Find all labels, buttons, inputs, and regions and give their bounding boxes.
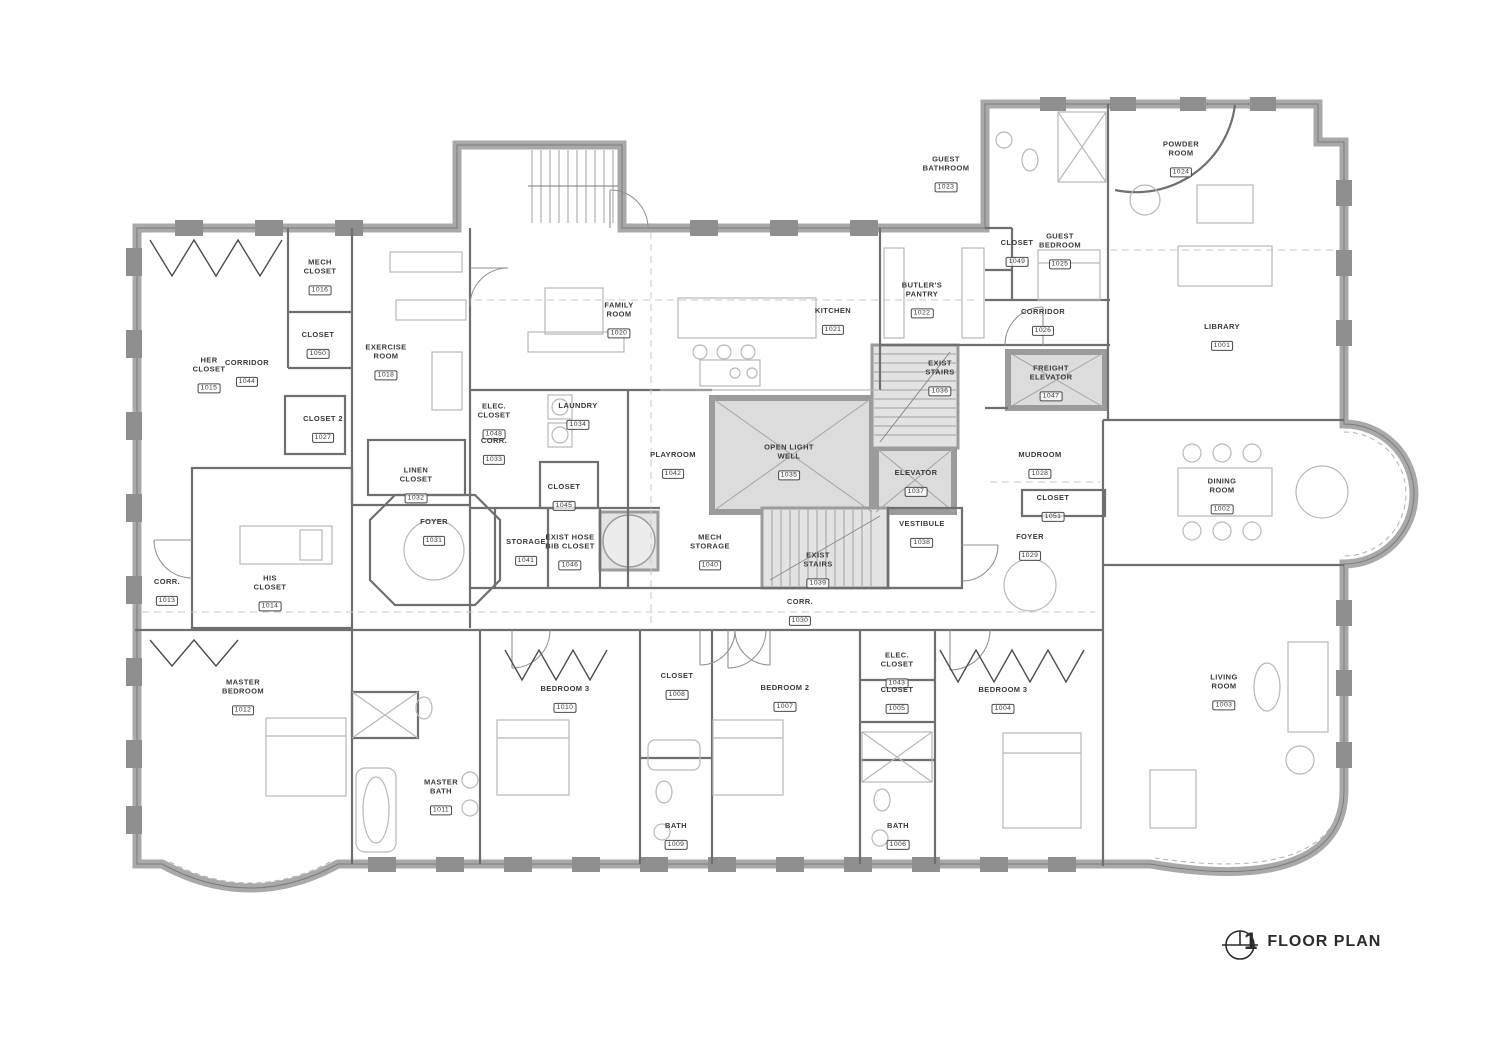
room-name: BEDROOM 3 xyxy=(978,685,1027,694)
room-name: LIVING ROOM xyxy=(1210,672,1237,690)
room-name: EXIST STAIRS xyxy=(925,358,954,376)
room-name: CLOSET xyxy=(1037,493,1070,502)
room-number-tag: 1027 xyxy=(312,433,335,443)
room-number-tag: 1034 xyxy=(567,420,590,430)
room-label: BEDROOM 2 1007 xyxy=(760,674,809,712)
room-name: FREIGHT ELEVATOR xyxy=(1030,363,1073,381)
room-number-tag: 1049 xyxy=(1006,257,1029,267)
room-label: GUEST BATHROOM 1023 xyxy=(923,145,970,192)
sheet-title: FLOOR PLAN xyxy=(1267,933,1381,951)
room-label: CORRIDOR 1044 xyxy=(225,349,269,387)
room-label: HER CLOSET 1015 xyxy=(193,346,226,393)
room-name: FOYER xyxy=(1016,532,1044,541)
room-name: PLAYROOM xyxy=(650,450,696,459)
room-name: CLOSET 2 xyxy=(303,414,343,423)
room-label: CLOSET 2 1027 xyxy=(303,405,343,443)
room-label: EXIST STAIRS 1039 xyxy=(803,541,832,588)
room-name: CORRIDOR xyxy=(225,358,269,367)
room-label: MECH CLOSET 1016 xyxy=(304,248,337,295)
room-label: ELEC. CLOSET 1043 xyxy=(881,641,914,688)
room-name: BEDROOM 3 xyxy=(540,684,589,693)
room-number-tag: 1003 xyxy=(1213,700,1236,710)
room-label: CLOSET 1005 xyxy=(881,676,914,714)
room-label: POWDER ROOM 1024 xyxy=(1163,130,1199,177)
room-number-tag: 1024 xyxy=(1170,167,1193,177)
room-label: CORRIDOR 1026 xyxy=(1021,298,1065,336)
floor-plan-sheet: HER CLOSET 1015 CORRIDOR 1044 MECH CLOSE… xyxy=(0,0,1500,1061)
room-label: DINING ROOM 1002 xyxy=(1208,467,1237,514)
room-name: ELEC. CLOSET xyxy=(881,650,914,668)
room-number-tag: 1026 xyxy=(1032,326,1055,336)
room-label: ELEC. CLOSET 1048 xyxy=(478,392,511,439)
room-label: LINEN CLOSET 1032 xyxy=(400,456,433,503)
room-labels-layer: HER CLOSET 1015 CORRIDOR 1044 MECH CLOSE… xyxy=(0,0,1500,1061)
room-name: EXIST STAIRS xyxy=(803,550,832,568)
room-label: CLOSET 1050 xyxy=(302,321,335,359)
room-number-tag: 1016 xyxy=(309,285,332,295)
room-number-tag: 1032 xyxy=(405,493,428,503)
room-label: MASTER BEDROOM 1012 xyxy=(222,668,264,715)
room-number-tag: 1018 xyxy=(375,370,398,380)
room-name: OPEN LIGHT WELL xyxy=(764,442,814,460)
room-number-tag: 1001 xyxy=(1211,341,1234,351)
room-name: POWDER ROOM xyxy=(1163,139,1199,157)
room-number-tag: 1043 xyxy=(886,678,909,688)
room-name: CLOSET xyxy=(661,671,694,680)
room-number-tag: 1002 xyxy=(1211,504,1234,514)
room-name: FAMILY ROOM xyxy=(604,300,633,318)
room-name: CORR. xyxy=(787,597,813,606)
room-number-tag: 1022 xyxy=(911,308,934,318)
room-number-tag: 1014 xyxy=(259,601,282,611)
room-number-tag: 1013 xyxy=(156,596,179,606)
room-name: EXIST HOSE BIB CLOSET xyxy=(545,532,594,550)
room-label: FAMILY ROOM 1020 xyxy=(604,291,633,338)
room-label: KITCHEN 1021 xyxy=(815,297,851,335)
room-label: BATH 1009 xyxy=(665,812,688,850)
room-label: LIBRARY 1001 xyxy=(1204,313,1240,351)
room-name: HIS CLOSET xyxy=(254,573,287,591)
room-number-tag: 1025 xyxy=(1049,259,1072,269)
room-label: VESTIBULE 1038 xyxy=(899,510,945,548)
room-number-tag: 1046 xyxy=(559,560,582,570)
room-number-tag: 1051 xyxy=(1042,512,1065,522)
room-label: LAUNDRY 1034 xyxy=(558,392,597,430)
sheet-number: 1 xyxy=(1244,928,1257,956)
room-number-tag: 1020 xyxy=(608,328,631,338)
room-label: CLOSET 1045 xyxy=(548,473,581,511)
room-name: STORAGE xyxy=(506,537,546,546)
room-label: PLAYROOM 1042 xyxy=(650,441,696,479)
room-number-tag: 1012 xyxy=(232,705,255,715)
room-name: LAUNDRY xyxy=(558,401,597,410)
room-number-tag: 1050 xyxy=(307,349,330,359)
room-label: GUEST BEDROOM 1025 xyxy=(1039,222,1081,269)
room-label: CLOSET 1049 xyxy=(1001,229,1034,267)
room-name: GUEST BATHROOM xyxy=(923,154,970,172)
room-label: CLOSET 1008 xyxy=(661,662,694,700)
room-label: MUDROOM 1028 xyxy=(1018,441,1061,479)
room-number-tag: 1029 xyxy=(1019,551,1042,561)
title-block: 1 FLOOR PLAN xyxy=(1222,928,1381,956)
room-number-tag: 1011 xyxy=(430,805,452,815)
room-number-tag: 1035 xyxy=(778,470,801,480)
room-name: MASTER BATH xyxy=(424,777,458,795)
room-name: CORR. xyxy=(481,436,507,445)
room-number-tag: 1039 xyxy=(807,578,830,588)
room-name: CORR. xyxy=(154,577,180,586)
room-name: LINEN CLOSET xyxy=(400,465,433,483)
room-label: CORR. 1030 xyxy=(787,588,813,626)
room-label: BEDROOM 3 1010 xyxy=(540,675,589,713)
room-label: FREIGHT ELEVATOR 1047 xyxy=(1030,354,1073,401)
room-number-tag: 1040 xyxy=(699,560,722,570)
room-name: MASTER BEDROOM xyxy=(222,677,264,695)
room-number-tag: 1036 xyxy=(929,386,952,396)
room-name: ELEC. CLOSET xyxy=(478,401,511,419)
room-label: BEDROOM 3 1004 xyxy=(978,676,1027,714)
room-label: BATH 1006 xyxy=(887,812,910,850)
room-label: STORAGE 1041 xyxy=(506,528,546,566)
room-label: MASTER BATH 1011 xyxy=(424,768,458,815)
room-number-tag: 1044 xyxy=(236,377,259,387)
room-name: CLOSET xyxy=(302,330,335,339)
room-label: EXERCISE ROOM 1018 xyxy=(365,333,406,380)
room-number-tag: 1045 xyxy=(553,501,576,511)
room-number-tag: 1004 xyxy=(992,704,1015,714)
room-name: KITCHEN xyxy=(815,306,851,315)
room-number-tag: 1038 xyxy=(911,538,934,548)
room-number-tag: 1021 xyxy=(822,325,845,335)
room-number-tag: 1008 xyxy=(666,690,689,700)
room-name: BATH xyxy=(665,821,687,830)
room-label: FOYER 1031 xyxy=(420,508,448,546)
room-name: BEDROOM 2 xyxy=(760,683,809,692)
room-label: CORR. 1033 xyxy=(481,427,507,465)
room-label: EXIST HOSE BIB CLOSET 1046 xyxy=(545,523,594,570)
room-name: BUTLER'S PANTRY xyxy=(902,280,942,298)
room-name: GUEST BEDROOM xyxy=(1039,231,1081,249)
room-number-tag: 1010 xyxy=(554,703,577,713)
room-name: EXERCISE ROOM xyxy=(365,342,406,360)
room-label: CLOSET 1051 xyxy=(1037,484,1070,522)
room-name: CLOSET xyxy=(1001,238,1034,247)
room-name: CLOSET xyxy=(881,685,914,694)
room-label: MECH STORAGE 1040 xyxy=(690,523,730,570)
room-number-tag: 1047 xyxy=(1040,391,1063,401)
room-label: CORR. 1013 xyxy=(154,568,180,606)
room-number-tag: 1031 xyxy=(423,536,446,546)
room-number-tag: 1037 xyxy=(905,487,928,497)
room-number-tag: 1006 xyxy=(887,840,910,850)
room-number-tag: 1041 xyxy=(515,556,538,566)
room-number-tag: 1023 xyxy=(935,182,958,192)
room-name: FOYER xyxy=(420,517,448,526)
room-name: CORRIDOR xyxy=(1021,307,1065,316)
room-name: ELEVATOR xyxy=(895,468,938,477)
room-number-tag: 1030 xyxy=(789,616,812,626)
room-number-tag: 1007 xyxy=(774,702,797,712)
room-name: LIBRARY xyxy=(1204,322,1240,331)
room-name: HER CLOSET xyxy=(193,355,226,373)
room-number-tag: 1028 xyxy=(1029,469,1052,479)
room-name: CLOSET xyxy=(548,482,581,491)
room-number-tag: 1048 xyxy=(483,429,506,439)
room-number-tag: 1005 xyxy=(886,704,909,714)
room-name: MECH STORAGE xyxy=(690,532,730,550)
room-label: OPEN LIGHT WELL 1035 xyxy=(764,433,814,480)
room-label: LIVING ROOM 1003 xyxy=(1210,663,1237,710)
room-name: MECH CLOSET xyxy=(304,257,337,275)
room-label: ELEVATOR 1037 xyxy=(895,459,938,497)
room-number-tag: 1015 xyxy=(198,383,221,393)
room-label: HIS CLOSET 1014 xyxy=(254,564,287,611)
room-name: DINING ROOM xyxy=(1208,476,1237,494)
room-label: FOYER 1029 xyxy=(1016,523,1044,561)
room-name: BATH xyxy=(887,821,909,830)
room-label: BUTLER'S PANTRY 1022 xyxy=(902,271,942,318)
room-label: EXIST STAIRS 1036 xyxy=(925,349,954,396)
room-number-tag: 1042 xyxy=(662,469,685,479)
room-number-tag: 1009 xyxy=(665,840,688,850)
room-name: VESTIBULE xyxy=(899,519,945,528)
room-name: MUDROOM xyxy=(1018,450,1061,459)
room-number-tag: 1033 xyxy=(483,455,506,465)
